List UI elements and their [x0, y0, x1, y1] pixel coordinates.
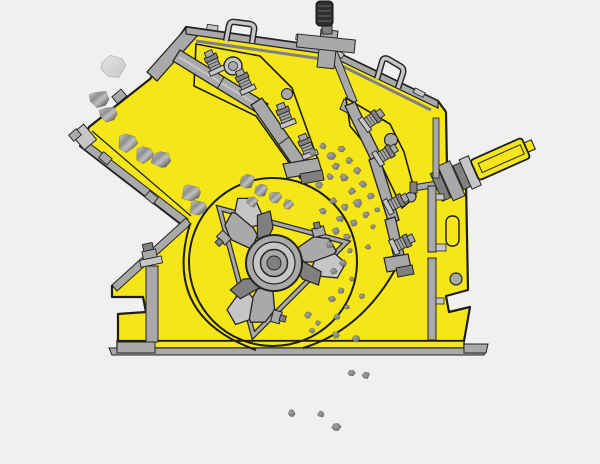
rock — [347, 248, 352, 253]
left-post — [146, 266, 158, 342]
right-wall-liner-lower — [428, 258, 436, 340]
apron2-pivot-pin — [385, 134, 398, 147]
base-foot-right — [464, 344, 488, 353]
base-rail — [109, 348, 487, 355]
rock — [374, 208, 380, 212]
base-foot-left — [117, 342, 155, 353]
base-frame — [109, 341, 488, 355]
right-wall-liner-upper — [428, 186, 436, 252]
rock — [359, 294, 365, 299]
wall-hole — [450, 273, 462, 285]
impact-crusher-illustration — [0, 0, 600, 464]
illustration-canvas — [0, 0, 600, 464]
rod-grip — [316, 1, 333, 26]
